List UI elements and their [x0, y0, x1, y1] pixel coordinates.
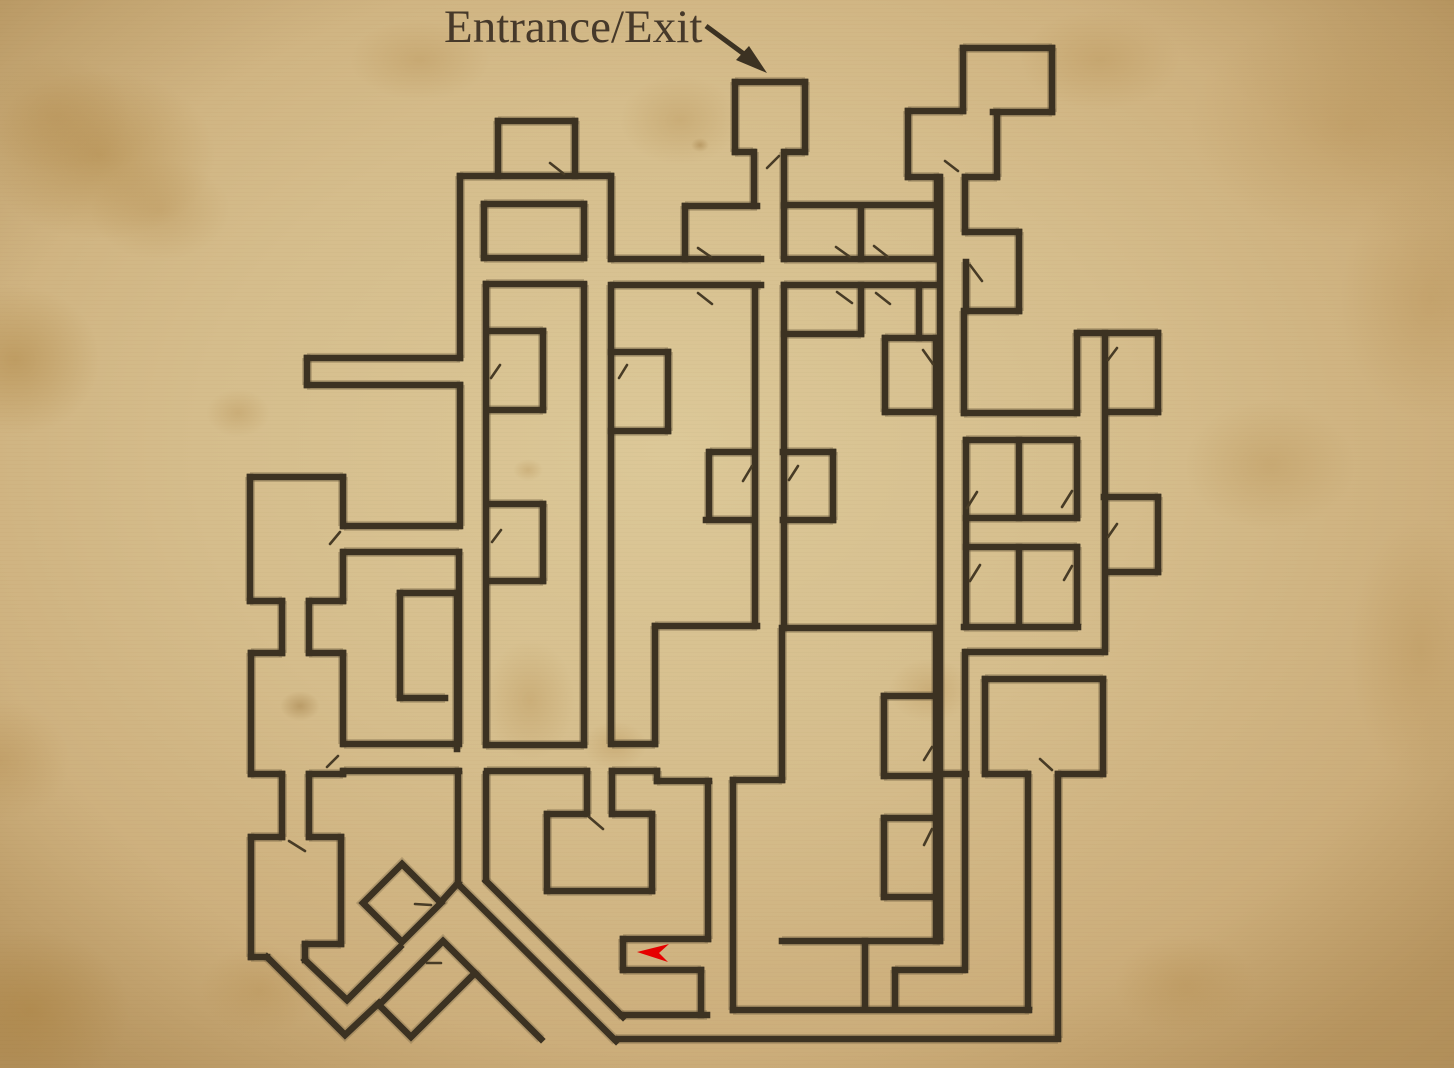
svg-text:Entrance/Exit: Entrance/Exit [444, 1, 702, 53]
